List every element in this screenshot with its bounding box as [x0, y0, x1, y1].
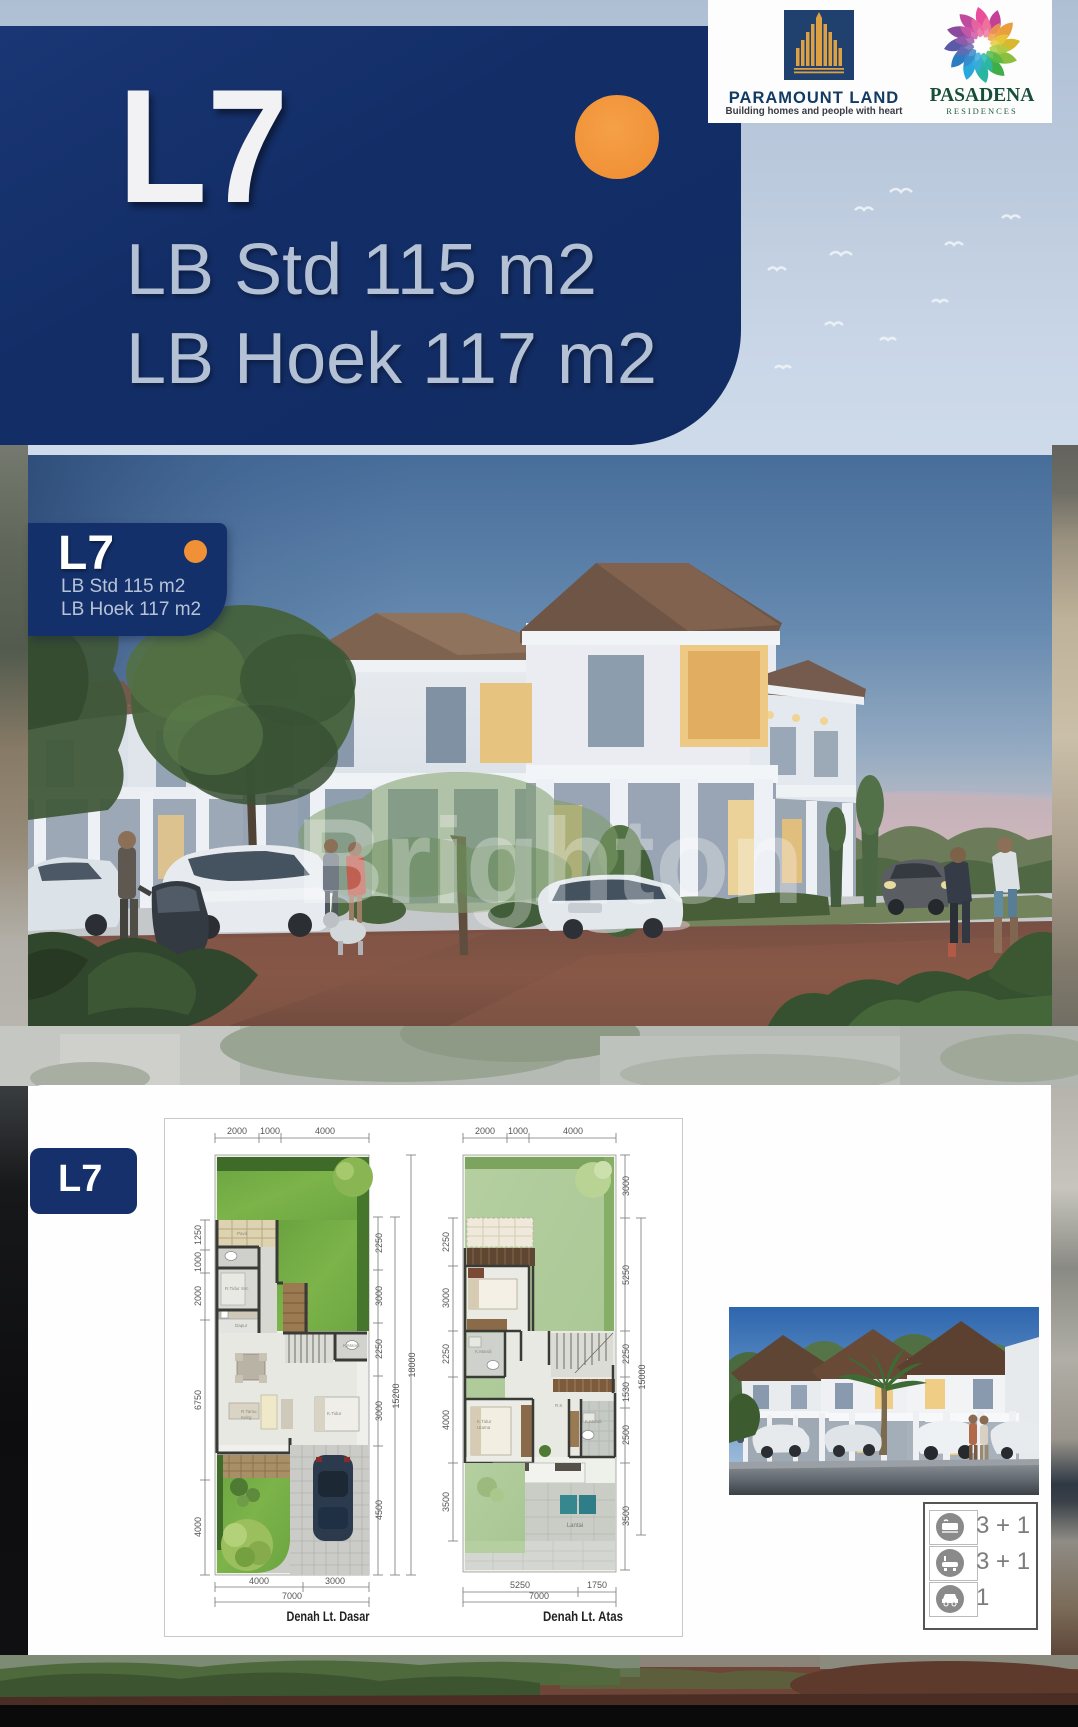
svg-text:Dapur: Dapur	[235, 1323, 248, 1328]
svg-text:15000: 15000	[637, 1364, 647, 1389]
svg-text:4000: 4000	[441, 1410, 451, 1430]
svg-text:5250: 5250	[621, 1265, 631, 1285]
svg-text:2250: 2250	[441, 1344, 451, 1364]
svg-text:1750: 1750	[587, 1580, 607, 1590]
svg-text:Lantai: Lantai	[567, 1523, 583, 1529]
svg-text:2500: 2500	[621, 1425, 631, 1445]
svg-text:Brighton: Brighton	[296, 793, 804, 929]
svg-text:3000: 3000	[374, 1401, 384, 1421]
svg-text:Denah Lt. Atas: Denah Lt. Atas	[543, 1608, 623, 1624]
svg-text:K.Mandi: K.Mandi	[343, 1343, 360, 1348]
svg-text:7000: 7000	[529, 1591, 549, 1601]
svg-text:RESIDENCES: RESIDENCES	[946, 106, 1017, 116]
svg-text:4500: 4500	[374, 1500, 384, 1520]
svg-text:3000: 3000	[441, 1288, 451, 1308]
svg-text:4000: 4000	[193, 1517, 203, 1537]
svg-text:7000: 7000	[282, 1591, 302, 1601]
svg-text:4000: 4000	[249, 1576, 269, 1586]
svg-text:3000: 3000	[621, 1176, 631, 1196]
svg-text:2250: 2250	[441, 1232, 451, 1252]
svg-text:4000: 4000	[563, 1126, 583, 1136]
svg-text:1250: 1250	[193, 1225, 203, 1245]
svg-text:Building homes and people with: Building homes and people with heart	[726, 106, 904, 117]
svg-text:1000: 1000	[508, 1126, 528, 1136]
svg-text:R.Tidur Svc: R.Tidur Svc	[225, 1286, 249, 1291]
svg-text:15200: 15200	[391, 1383, 401, 1408]
svg-text:K.Tidur: K.Tidur	[477, 1419, 492, 1424]
svg-text:PARAMOUNT LAND: PARAMOUNT LAND	[729, 89, 899, 107]
svg-text:18000: 18000	[407, 1352, 417, 1377]
svg-text:PASADENA: PASADENA	[930, 85, 1035, 106]
svg-text:R.Tamu: R.Tamu	[241, 1409, 257, 1414]
svg-text:2000: 2000	[193, 1286, 203, 1306]
svg-text:2250: 2250	[374, 1233, 384, 1253]
svg-text:Utama: Utama	[477, 1425, 491, 1430]
svg-text:6750: 6750	[193, 1390, 203, 1410]
svg-text:K.Tidur: K.Tidur	[327, 1411, 342, 1416]
svg-text:4000: 4000	[315, 1126, 335, 1136]
svg-text:2250: 2250	[621, 1344, 631, 1364]
svg-text:2000: 2000	[475, 1126, 495, 1136]
svg-text:3500: 3500	[441, 1492, 451, 1512]
svg-text:5250: 5250	[510, 1580, 530, 1590]
svg-text:Denah Lt. Dasar: Denah Lt. Dasar	[287, 1608, 370, 1624]
svg-text:3500: 3500	[621, 1506, 631, 1526]
svg-text:1530: 1530	[621, 1382, 631, 1402]
svg-text:Kelrg: Kelrg	[241, 1415, 252, 1420]
svg-text:R.K: R.K	[555, 1403, 563, 1408]
svg-text:1000: 1000	[260, 1126, 280, 1136]
svg-text:K.Mandi: K.Mandi	[475, 1349, 492, 1354]
svg-text:3000: 3000	[325, 1576, 345, 1586]
svg-text:2250: 2250	[374, 1339, 384, 1359]
svg-text:3000: 3000	[374, 1286, 384, 1306]
svg-text:1000: 1000	[193, 1252, 203, 1272]
svg-text:K.Mandi: K.Mandi	[585, 1419, 602, 1424]
svg-text:2000: 2000	[227, 1126, 247, 1136]
svg-text:Pavir: Pavir	[237, 1231, 248, 1236]
